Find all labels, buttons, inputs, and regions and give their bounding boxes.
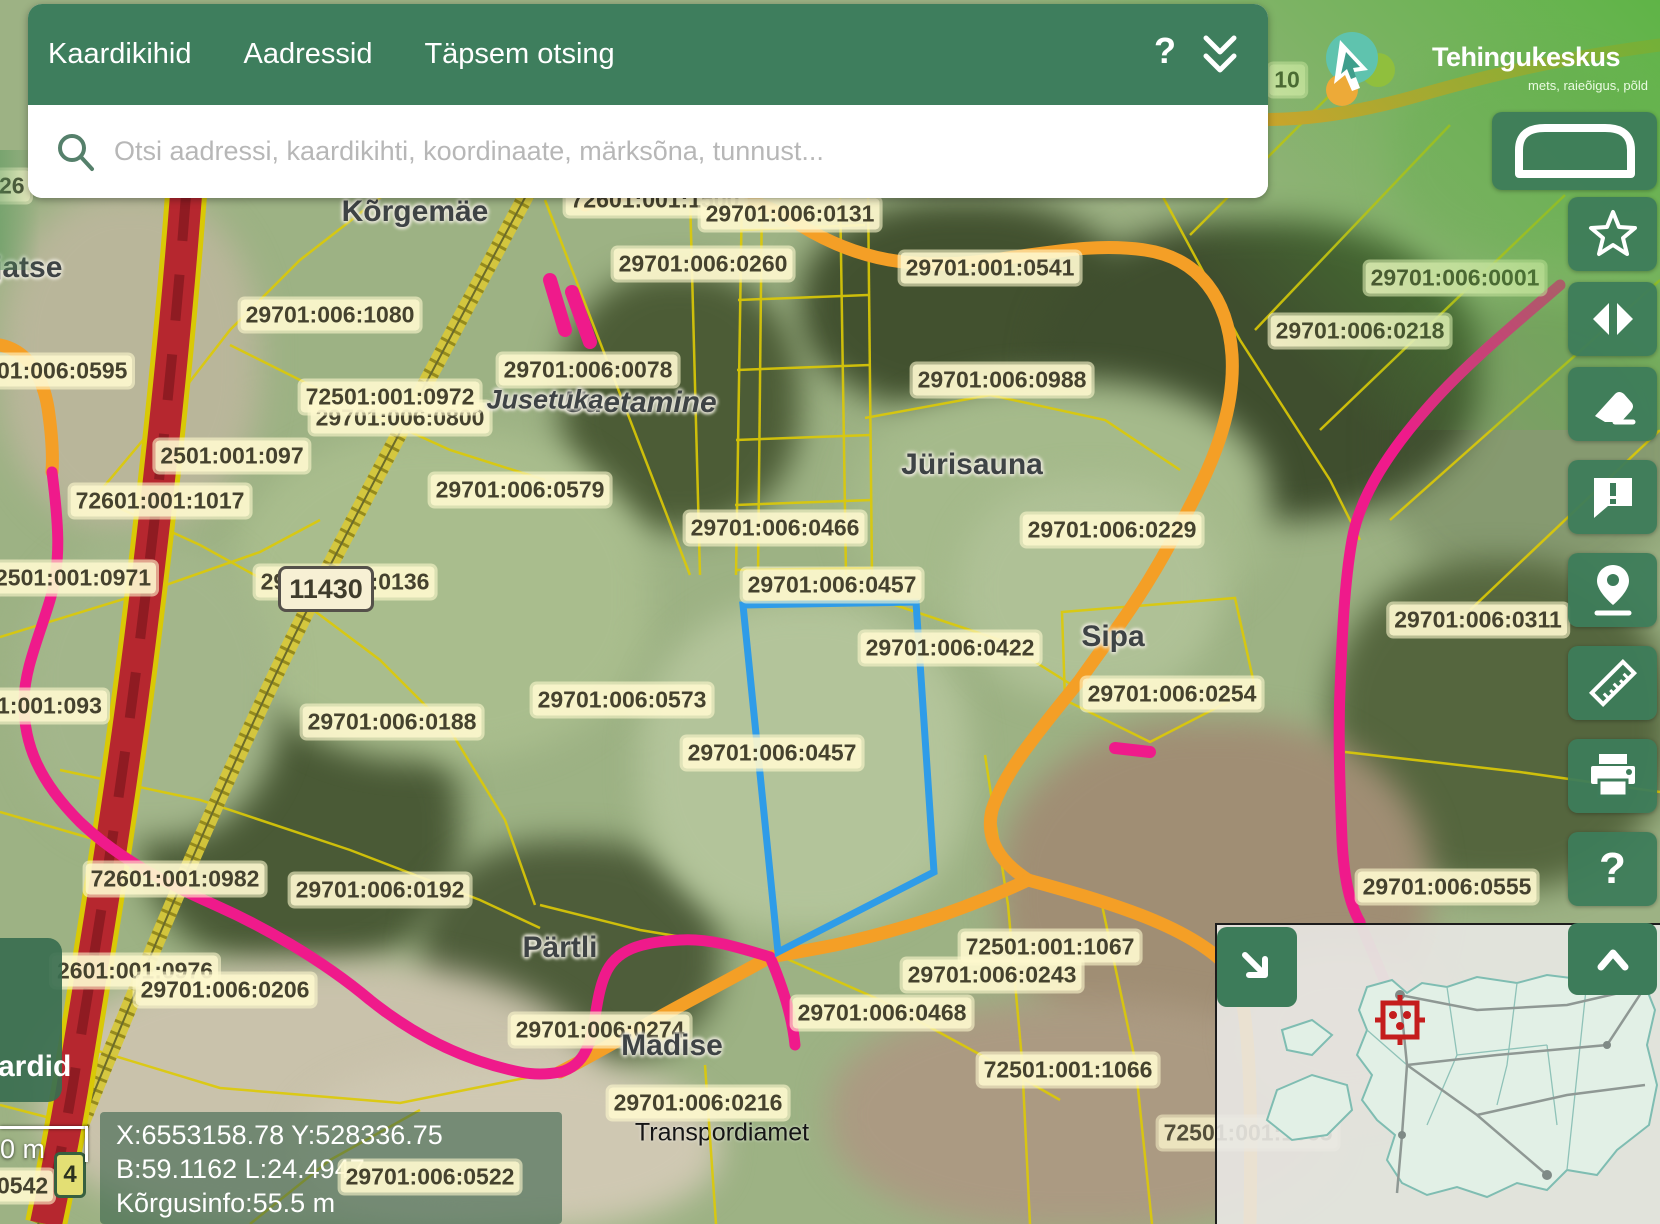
scale-label: 0 m: [0, 1134, 45, 1165]
menu-tapsem-otsing[interactable]: Täpsem otsing: [424, 38, 614, 71]
header-bar: Kaardikihid Aadressid Täpsem otsing ?: [28, 4, 1268, 105]
chevron-up-icon: [1587, 937, 1639, 981]
elevation-info: Kõrgusinfo:55.5 m: [116, 1186, 546, 1220]
logo-tagline: mets, raieõigus, põld: [1280, 78, 1648, 93]
arrow-down-right-icon: [1233, 943, 1281, 991]
coordinates-bl: B:59.1162 L:24.4947: [116, 1152, 546, 1186]
highlighted-parcel-outline: [743, 602, 934, 952]
layers-side-tab[interactable]: ardid: [0, 938, 62, 1102]
eraser-icon: [1585, 376, 1641, 432]
help-link[interactable]: ?: [1154, 30, 1176, 72]
sidebar-collapse-button[interactable]: [1568, 923, 1657, 995]
tool-measure-button[interactable]: [1568, 646, 1657, 720]
scale-line: [0, 1126, 88, 1129]
comment-exclamation-icon: [1586, 470, 1640, 524]
map-stage[interactable]: 72601:001:150029701:006:013129701:006:02…: [0, 0, 1660, 1224]
road-number-badge: 11430: [278, 566, 374, 612]
coordinates-xy: X:6553158.78 Y:528336.75: [116, 1118, 546, 1152]
scale-tick: [85, 1126, 88, 1162]
tool-compare-button[interactable]: [1568, 282, 1657, 356]
search-icon: [54, 130, 98, 174]
minimap-collapse-button[interactable]: [1217, 927, 1297, 1007]
collapse-panel-button[interactable]: [1200, 32, 1240, 83]
ruler-icon: [1585, 655, 1641, 711]
scale-bar: 0 m: [0, 1124, 90, 1164]
tool-feedback-button[interactable]: [1568, 460, 1657, 534]
logo-name: Tehingukeskus: [1432, 42, 1620, 73]
tool-favorites-button[interactable]: [1568, 197, 1657, 271]
tool-locate-button[interactable]: [1568, 553, 1657, 627]
menu-aadressid[interactable]: Aadressid: [243, 38, 372, 71]
question-mark-icon: ?: [1599, 844, 1626, 894]
menu-kaardikihid[interactable]: Kaardikihid: [48, 38, 191, 71]
double-chevron-down-icon: [1200, 32, 1240, 78]
layers-tab-label: ardid: [0, 1050, 71, 1084]
tool-erase-button[interactable]: [1568, 367, 1657, 441]
search-panel: Kaardikihid Aadressid Täpsem otsing ?: [28, 4, 1268, 198]
tool-basemap-button[interactable]: [1492, 112, 1657, 190]
basemap-arch-icon: [1505, 120, 1645, 182]
search-input[interactable]: [112, 135, 1268, 168]
app-logo: Tehingukeskus mets, raieõigus, põld: [1280, 28, 1650, 108]
tool-print-button[interactable]: [1568, 739, 1657, 813]
search-row: [28, 105, 1268, 198]
location-pin-icon: [1587, 561, 1639, 619]
left-right-arrows-icon: [1585, 297, 1641, 341]
coordinates-panel: X:6553158.78 Y:528336.75 B:59.1162 L:24.…: [100, 1112, 562, 1224]
star-icon: [1585, 206, 1641, 262]
tool-help-button[interactable]: ?: [1568, 832, 1657, 906]
logo-icon: [1280, 28, 1430, 108]
printer-icon: [1585, 750, 1641, 802]
